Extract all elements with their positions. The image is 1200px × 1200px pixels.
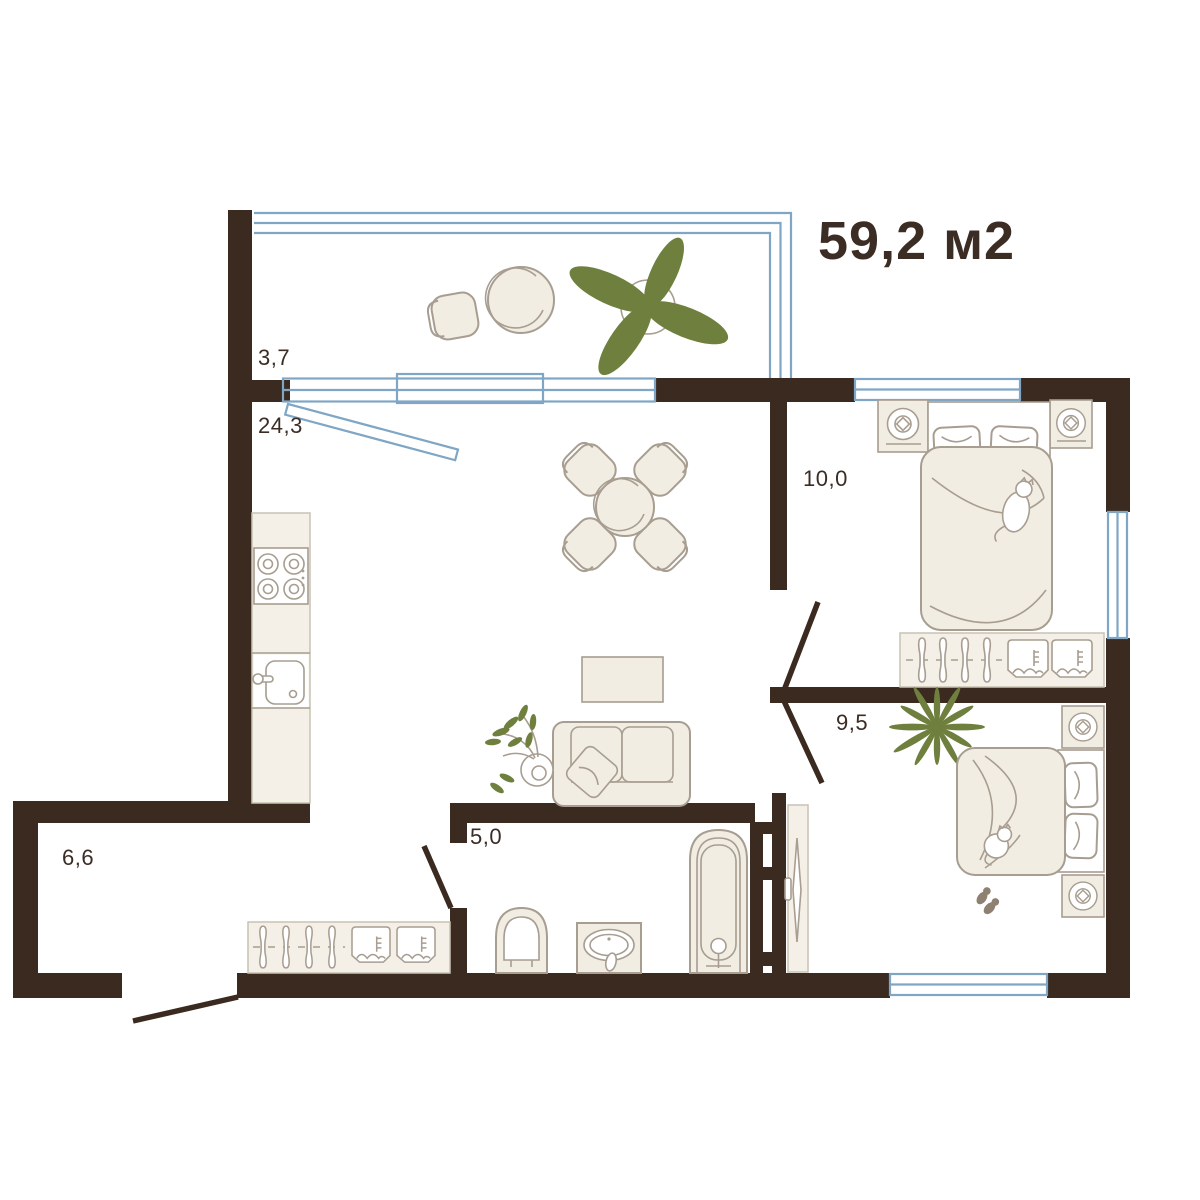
floor-plan-drawing — [0, 0, 1200, 1200]
entrance-door-icon — [133, 997, 238, 1021]
coffee-table-icon — [582, 657, 663, 702]
mirror-door-icon — [785, 805, 808, 972]
slippers-icon — [972, 885, 1004, 918]
window-icon — [1108, 512, 1127, 638]
window-icon — [890, 974, 1047, 995]
room-area-bedroom-primary: 10,0 — [803, 466, 848, 492]
room-area-living-room: 24,3 — [258, 413, 303, 439]
bedroom-secondary-furniture — [889, 686, 1104, 918]
kitchen-sink-icon — [253, 655, 309, 708]
floor-plan: 59,2 м2 3,7 24,3 10,0 9,5 5,0 6,6 — [0, 0, 1200, 1200]
toilet-icon — [496, 908, 547, 973]
room-area-bathroom: 5,0 — [470, 824, 502, 850]
balcony-table-icon — [486, 267, 554, 333]
plant-icon — [485, 703, 553, 795]
plant-icon — [564, 233, 734, 383]
bathtub-icon — [690, 830, 747, 973]
interior-door-icon — [783, 602, 818, 693]
nightstand-lamp-icon — [1050, 400, 1092, 448]
clothes-box-icon — [352, 927, 390, 962]
nightstand-lamp-icon — [1062, 706, 1104, 748]
bedroom-primary-furniture — [878, 400, 1104, 687]
nightstand-lamp-icon — [1062, 875, 1104, 917]
balcony-furniture — [426, 233, 734, 383]
stove-icon — [254, 548, 308, 604]
dining-set — [556, 436, 694, 578]
interior-door-icon — [784, 701, 822, 783]
interior-door-icon — [424, 846, 451, 908]
washbasin-icon — [577, 923, 641, 973]
chair-icon — [426, 291, 481, 343]
hallway-wardrobe-icon — [248, 922, 450, 973]
room-area-hallway: 6,6 — [62, 845, 94, 871]
lounge — [485, 657, 690, 806]
window-icon — [855, 379, 1020, 400]
wardrobe-hangers-icon — [900, 633, 1104, 687]
double-bed-icon — [921, 402, 1052, 630]
clothes-box-icon — [1008, 640, 1048, 677]
clothes-box-icon — [397, 927, 435, 962]
bathroom-fixtures — [496, 830, 747, 973]
clothes-box-icon — [1052, 640, 1092, 677]
nightstand-lamp-icon — [878, 400, 928, 452]
kitchen-counter — [252, 513, 310, 803]
double-bed-icon — [957, 748, 1104, 875]
room-area-bedroom-secondary: 9,5 — [836, 710, 868, 736]
balcony-door-leaf-icon — [285, 404, 458, 460]
total-area-label: 59,2 м2 — [818, 210, 1015, 272]
room-area-balcony: 3,7 — [258, 345, 290, 371]
